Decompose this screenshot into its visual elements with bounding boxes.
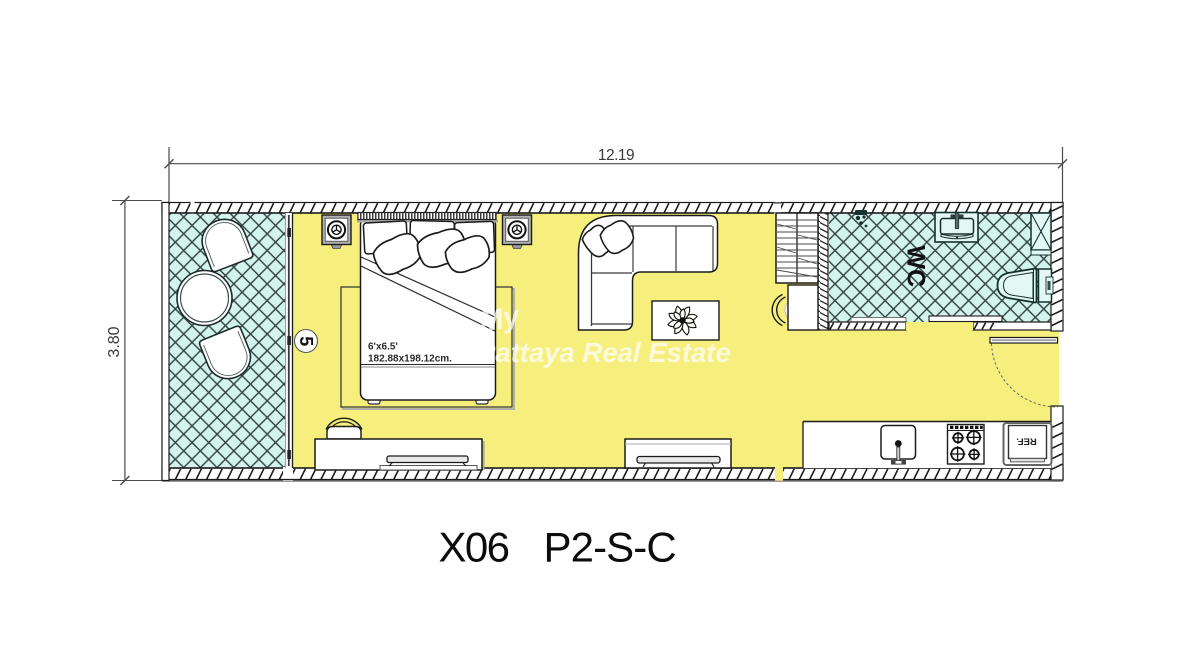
svg-text:12.19: 12.19 xyxy=(598,147,634,164)
svg-text:Pattaya Real Estate: Pattaya Real Estate xyxy=(477,337,731,368)
svg-text:WC: WC xyxy=(902,246,930,288)
svg-text:P2-S-C: P2-S-C xyxy=(544,523,676,570)
svg-text:6'x6.5': 6'x6.5' xyxy=(368,342,398,353)
svg-text:REF.: REF. xyxy=(1016,435,1037,446)
svg-text:182.88x198.12cm.: 182.88x198.12cm. xyxy=(368,354,452,365)
svg-text:X06: X06 xyxy=(439,523,509,570)
svg-text:3.80: 3.80 xyxy=(106,326,123,357)
svg-text:5: 5 xyxy=(296,336,316,346)
